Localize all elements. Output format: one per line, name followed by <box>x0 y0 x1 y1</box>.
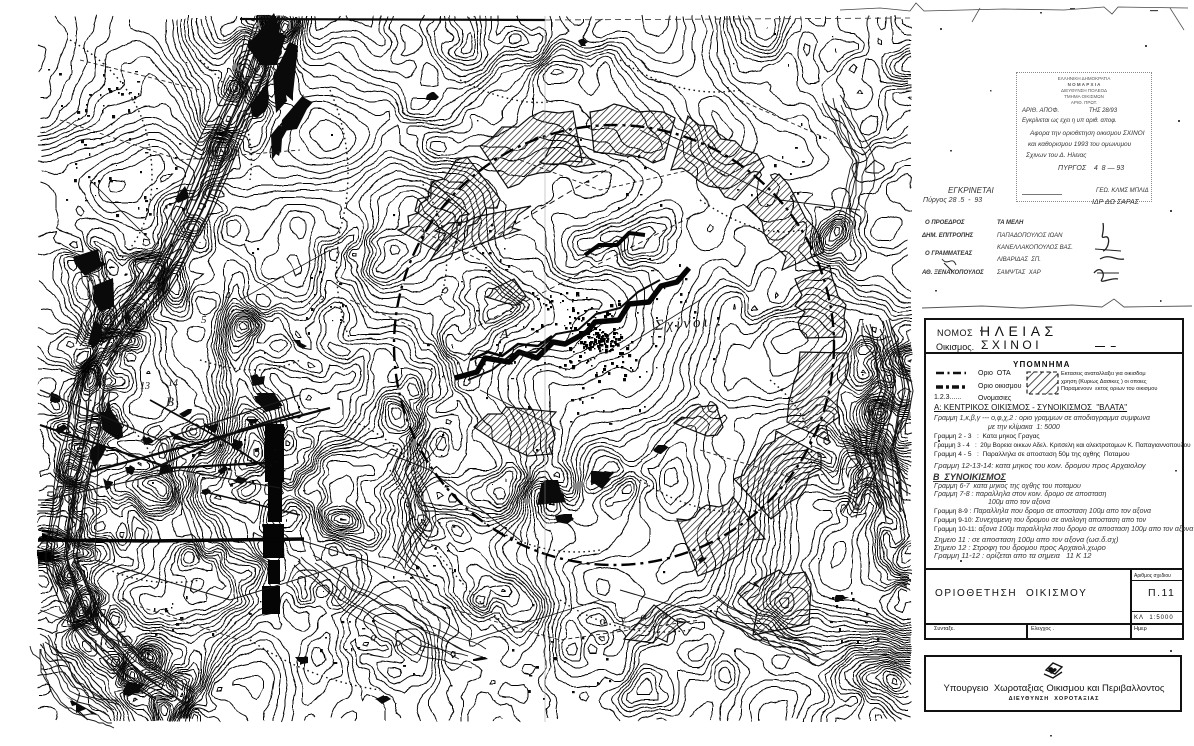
svg-text:13: 13 <box>140 381 150 392</box>
svg-text:A: A <box>499 327 509 342</box>
svg-text:3: 3 <box>318 294 325 306</box>
svg-text:B: B <box>166 394 174 409</box>
svg-text:4: 4 <box>225 290 231 302</box>
svg-text:14: 14 <box>168 378 178 389</box>
svg-text:5: 5 <box>201 314 207 326</box>
